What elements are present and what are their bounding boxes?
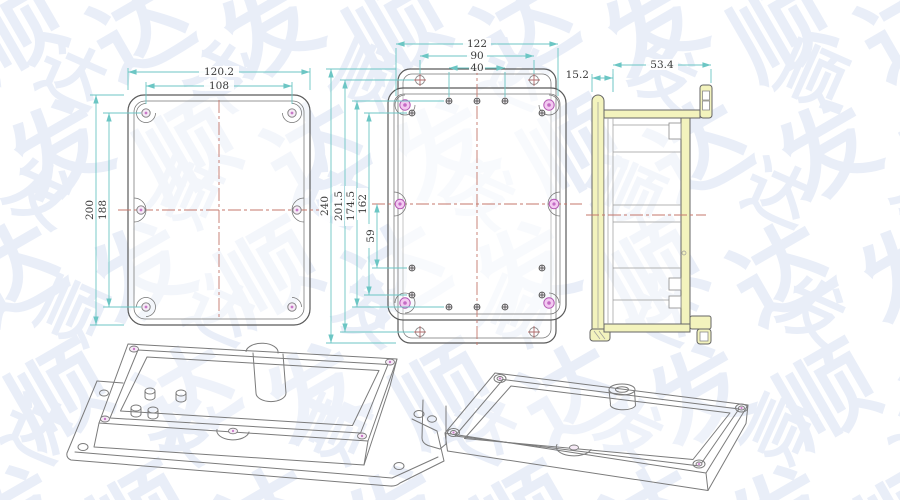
dimension-side-15-2: 15.2 xyxy=(561,69,613,92)
iso-view-lid xyxy=(422,373,748,491)
front-view-lid: 122 90 40 240 xyxy=(319,38,582,346)
drawing-canvas: 顺达发顺达发顺达发顺达发顺达发顺达发顺达发顺达发顺达发顺达发顺达发顺达发顺达发顺… xyxy=(0,0,900,500)
iso-view-base xyxy=(67,343,444,486)
dim-label: 240 xyxy=(319,196,331,216)
dim-label: 108 xyxy=(209,80,229,92)
dim-label: 188 xyxy=(97,200,109,220)
dim-label: 59 xyxy=(365,229,377,242)
front-view-base: 120.2 108 200 xyxy=(84,66,320,325)
dim-label: 40 xyxy=(470,62,483,74)
dimension-side-53-4: 53.4 xyxy=(613,59,711,92)
dim-label: 174.5 xyxy=(345,191,357,221)
dim-label: 162 xyxy=(357,194,369,214)
dim-label: 201.5 xyxy=(333,191,345,221)
dim-label: 200 xyxy=(84,200,96,220)
dim-label: 53.4 xyxy=(650,59,674,71)
technical-drawing: 120.2 108 200 xyxy=(0,0,900,500)
side-section-view: 15.2 53.4 xyxy=(561,59,712,344)
dim-label: 120.2 xyxy=(204,66,234,78)
base-section xyxy=(604,85,712,344)
dim-label: 122 xyxy=(467,38,487,50)
dim-label: 15.2 xyxy=(566,69,589,81)
dim-label: 90 xyxy=(470,50,483,62)
